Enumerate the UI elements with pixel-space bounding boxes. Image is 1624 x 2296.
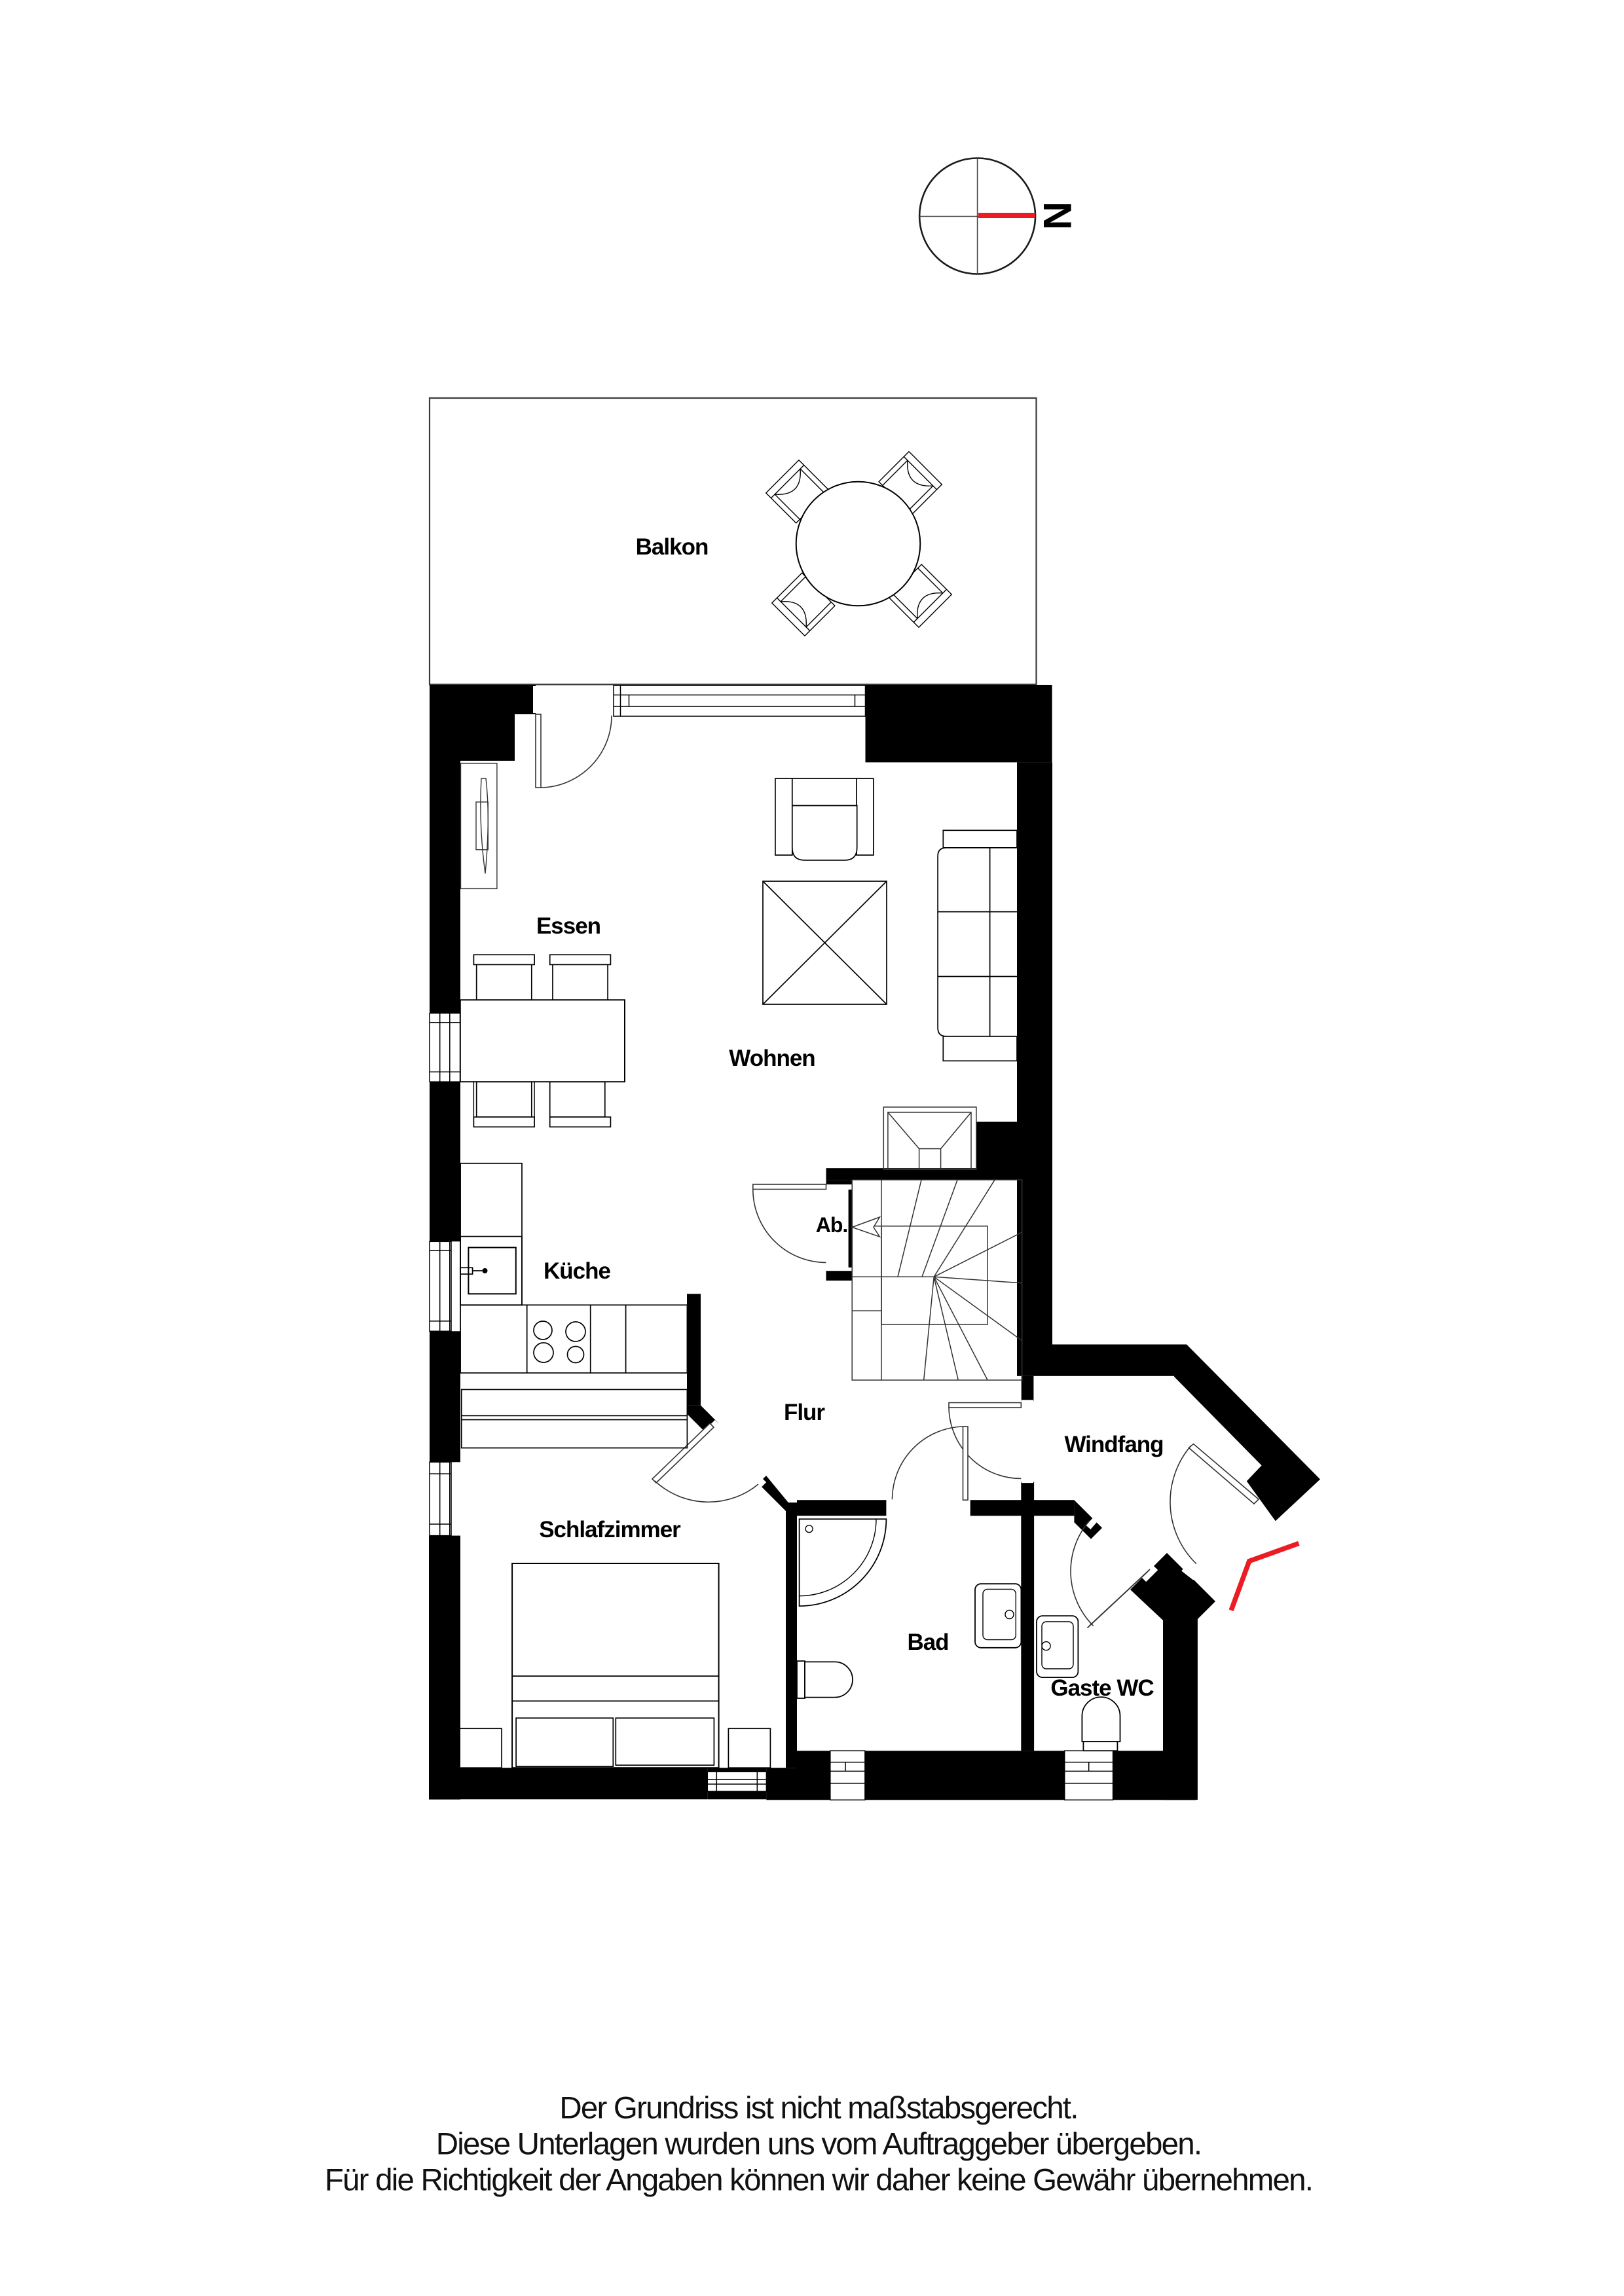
svg-text:Gaste WC: Gaste WC <box>1050 1675 1154 1701</box>
svg-text:Diese Unterlagen wurden uns vo: Diese Unterlagen wurden uns vom Auftragg… <box>436 2127 1201 2162</box>
svg-text:Für die Richtigkeit der Angabe: Für die Richtigkeit der Angaben können w… <box>325 2163 1312 2198</box>
svg-text:Windfang: Windfang <box>1064 1432 1163 1457</box>
svg-text:Der Grundriss ist nicht maßsta: Der Grundriss ist nicht maßstabsgerecht. <box>559 2091 1077 2126</box>
svg-text:Essen: Essen <box>536 913 600 939</box>
svg-text:N: N <box>1035 202 1079 230</box>
svg-text:Küche: Küche <box>544 1258 611 1284</box>
svg-text:Bad: Bad <box>907 1630 948 1655</box>
svg-text:Wohnen: Wohnen <box>729 1046 815 1071</box>
svg-text:Ab.: Ab. <box>816 1213 848 1237</box>
svg-text:Schlafzimmer: Schlafzimmer <box>539 1517 681 1542</box>
svg-text:Flur: Flur <box>784 1400 825 1425</box>
svg-text:Balkon: Balkon <box>636 534 709 560</box>
